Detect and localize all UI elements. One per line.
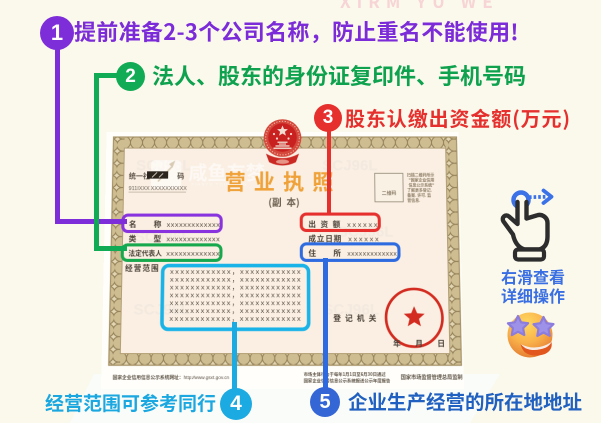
svg-text:统一社: 统一社 [129, 171, 150, 181]
svg-text:911IXXX XXXXXXXXXX: 911IXXX XXXXXXXXXX [129, 186, 188, 192]
svg-text:经营范围: 经营范围 [125, 262, 160, 273]
svg-text:(副 本): (副 本) [268, 195, 299, 209]
svg-text:国家市场监督管理总局监制: 国家市场监督管理总局监制 [401, 374, 463, 381]
svg-text:登记机关: 登记机关 [333, 312, 380, 324]
svg-text:市场主体行为于每年1月1日至6月30日通过: 市场主体行为于每年1月1日至6月30日通过 [304, 371, 387, 378]
svg-text:国家企业信用信息公示系统报送公示年度报告: 国家企业信用信息公示系统报送公示年度报告 [304, 377, 391, 384]
svg-text:xxxxxxxxxxxxx: xxxxxxxxxxxxx [166, 222, 220, 230]
svg-text:xxxxxxxxxxxxx: xxxxxxxxxxxxx [166, 236, 220, 244]
svg-text:码: 码 [177, 171, 184, 181]
svg-text:xxxxxxxxxxxxx: xxxxxxxxxxxxx [347, 251, 397, 258]
svg-text:管信息.: 管信息. [407, 198, 420, 204]
svg-text:二维码: 二维码 [382, 190, 397, 197]
svg-text:xxxxxx: xxxxxx [347, 222, 379, 230]
svg-text:xxxxxxxxxxxxx: xxxxxxxxxxxxx [166, 251, 220, 259]
svg-text:营业执照: 营业执照 [224, 166, 341, 196]
svg-text:国家企业信用信息公示系统网址：http:∕∕www.gsxt: 国家企业信用信息公示系统网址：http:∕∕www.gsxt.gov.cn [113, 374, 230, 381]
svg-text:出资额: 出资额 [308, 219, 345, 230]
svg-text:法定代表人: 法定代表人 [128, 247, 162, 257]
